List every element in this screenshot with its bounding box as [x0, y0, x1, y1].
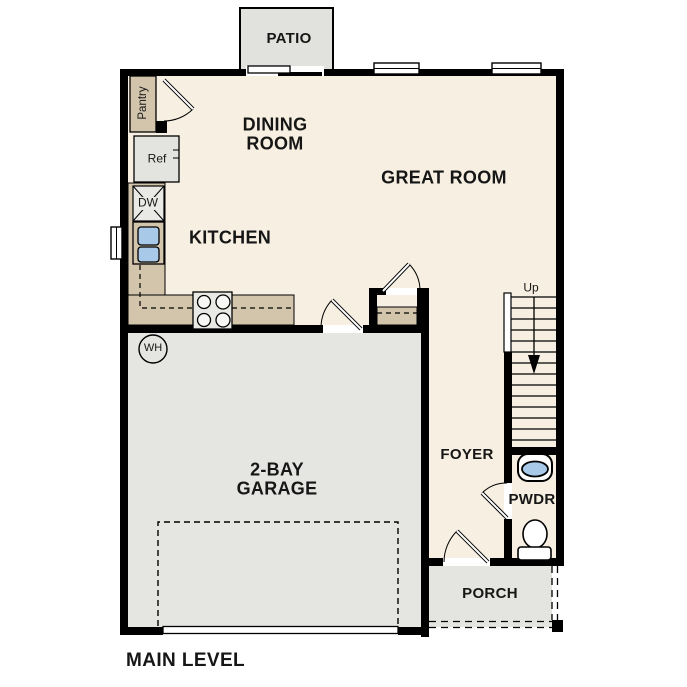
- floorplan: PATIO DINING ROOM GREAT ROOM KITCHEN 2-B…: [0, 0, 687, 687]
- window-great-room: [492, 63, 541, 74]
- sliding-patio-door: [246, 66, 324, 76]
- floorplan-canvas: [0, 0, 687, 687]
- stove: [193, 292, 232, 329]
- powder-sink: [518, 454, 552, 481]
- refrigerator-label: Ref: [148, 153, 167, 166]
- pantry-label: Pantry: [137, 86, 149, 119]
- window-dining: [374, 63, 419, 74]
- closet-shelf: [377, 307, 417, 325]
- great-room-label: GREAT ROOM: [381, 168, 507, 187]
- porch-post: [552, 620, 563, 632]
- window-kitchen: [111, 227, 122, 259]
- garage-label: 2-BAY GARAGE: [218, 461, 336, 500]
- kitchen-label: KITCHEN: [189, 228, 271, 247]
- patio-label: PATIO: [266, 31, 311, 47]
- porch-label: PORCH: [462, 586, 518, 602]
- foyer-label: FOYER: [440, 447, 493, 463]
- stairs-up-label: Up: [523, 282, 538, 295]
- water-heater-label: WH: [144, 343, 162, 355]
- level-title: MAIN LEVEL: [126, 650, 245, 672]
- powder-room-label: PWDR: [508, 492, 555, 508]
- dining-room-label: DINING ROOM: [219, 116, 331, 155]
- kitchen-sink: [133, 222, 164, 264]
- stair-railing: [504, 293, 511, 352]
- dishwasher-label: DW: [138, 197, 158, 210]
